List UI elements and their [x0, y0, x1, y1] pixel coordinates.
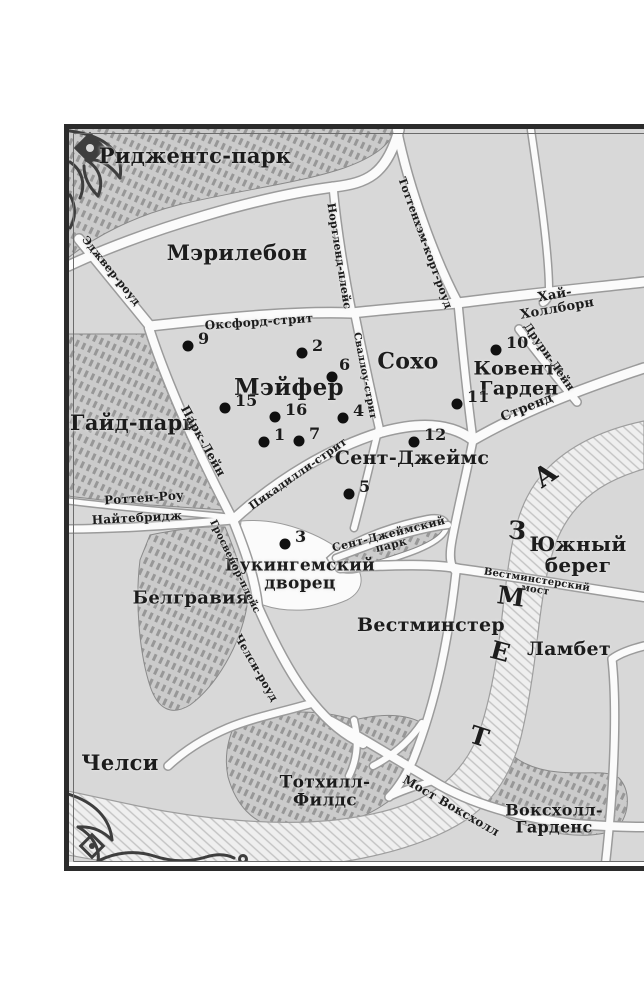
point-number: 4 — [353, 401, 364, 420]
region-label-hyde-park: Гайд-парк — [70, 412, 198, 434]
region-label-lambeth: Ламбет — [527, 640, 611, 660]
region-label-st-james: Сент-Джеймс — [335, 449, 489, 469]
region-label-marylebone: Мэрилебон — [167, 242, 308, 264]
region-label-regents-park: Риджентс-парк — [99, 145, 292, 167]
region-label-chelsea: Челси — [81, 752, 158, 774]
point-number: 16 — [285, 400, 307, 419]
point-number: 9 — [198, 329, 209, 348]
point-dot — [280, 539, 291, 550]
london-map: Риджентс-парк Мэрилебон Сохо Мэйфер Кове… — [0, 0, 644, 1000]
point-number: 10 — [506, 333, 528, 352]
point-dot — [220, 403, 231, 414]
point-dot — [294, 436, 305, 447]
point-number: 1 — [274, 425, 285, 444]
point-dot — [491, 345, 502, 356]
point-number: 11 — [467, 387, 489, 406]
point-dot — [409, 437, 420, 448]
point-number: 2 — [312, 336, 323, 355]
map-geography — [0, 0, 644, 1000]
region-label-soho: Сохо — [377, 351, 438, 374]
region-label-tothill-fields: Тотхилл- Филдс — [280, 774, 371, 809]
point-dot — [259, 437, 270, 448]
region-label-south-bank: Южный берег — [530, 534, 627, 576]
point-dot — [344, 489, 355, 500]
point-number: 12 — [424, 425, 446, 444]
point-number: 6 — [339, 355, 350, 374]
region-label-westminster: Вестминстер — [357, 616, 505, 636]
point-dot — [338, 413, 349, 424]
river-letter-m: М — [495, 582, 526, 612]
map-page: Риджентс-парк Мэрилебон Сохо Мэйфер Кове… — [0, 0, 644, 1000]
point-dot — [297, 348, 308, 359]
point-dot — [452, 399, 463, 410]
point-number: 7 — [309, 424, 320, 443]
point-dot — [270, 412, 281, 423]
point-number: 15 — [235, 391, 257, 410]
point-number: 3 — [295, 527, 306, 546]
point-number: 5 — [359, 477, 370, 496]
region-label-vauxhall-gardens: Воксхолл- Гарденс — [505, 802, 603, 835]
point-dot — [327, 372, 338, 383]
river-letter-z: З — [507, 517, 527, 544]
point-dot — [183, 341, 194, 352]
